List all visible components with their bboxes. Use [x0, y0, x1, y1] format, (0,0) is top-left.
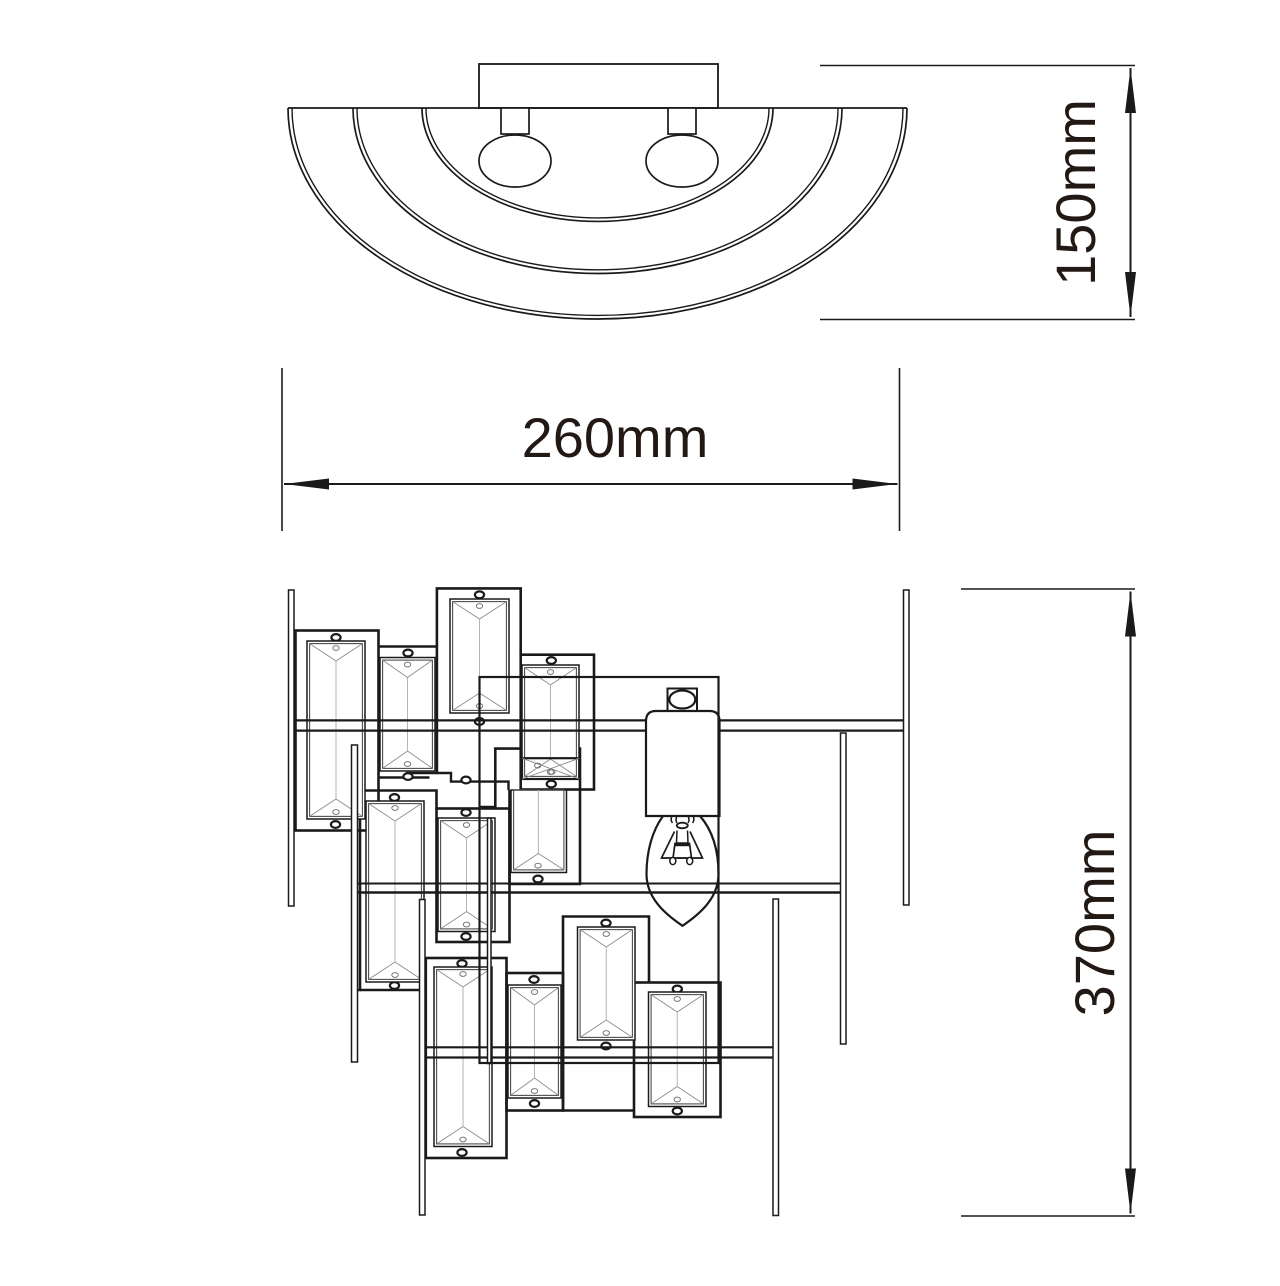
- svg-text:150mm: 150mm: [1044, 99, 1107, 286]
- svg-text:260mm: 260mm: [522, 406, 709, 469]
- svg-text:370mm: 370mm: [1063, 830, 1126, 1017]
